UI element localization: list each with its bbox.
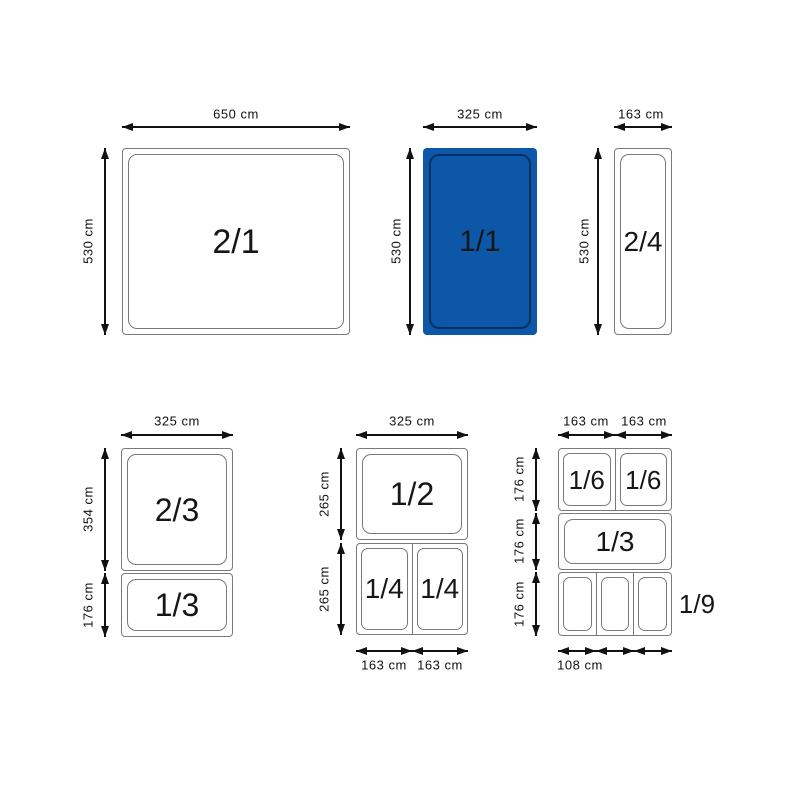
pan-1-9-first: [559, 573, 596, 635]
pan-1-4-first: 1/4: [357, 544, 412, 634]
dim-label-1-6-row-height: 176 cm: [512, 456, 527, 502]
pan-2-1-label: 2/1: [123, 149, 349, 334]
dim-arrow-1-3-left-height: [104, 573, 106, 637]
pan-1-6-second-label: 1/6: [616, 449, 672, 510]
pan-1-3-right-label: 1/3: [559, 514, 671, 569]
dim-arrow-2-4-width: [614, 126, 672, 128]
pan-1-4-second-label: 1/4: [413, 544, 468, 634]
dim-arrow-1-6-row-height: [535, 448, 537, 511]
dim-arrow-1-3-right-height: [535, 513, 537, 570]
dim-arrow-1-9-first-width: [558, 650, 596, 652]
dim-label-left-group-width: 325 cm: [154, 414, 200, 429]
pan-2-4-label: 2/4: [615, 149, 671, 334]
pan-2-3-label: 2/3: [122, 449, 232, 570]
pan-1-9-third-inner-rim: [638, 577, 667, 631]
dim-label-2-4-height: 530 cm: [577, 218, 592, 264]
dim-arrow-1-4-first-width: [356, 650, 412, 652]
dim-arrow-1-9-third-width: [634, 650, 672, 652]
pan-1-6-first-label: 1/6: [559, 449, 615, 510]
pan-1-9-third: [633, 573, 671, 635]
dim-label-1-4-row-height: 265 cm: [317, 566, 332, 612]
pan-2-3: 2/3: [121, 448, 233, 571]
pan-row-1-4: 1/4 1/4: [356, 543, 468, 635]
dim-arrow-1-4-row-height: [340, 543, 342, 635]
dim-arrow-1-9-row-height: [535, 572, 537, 636]
pan-1-9-second: [596, 573, 634, 635]
dim-label-right-group-width-second: 163 cm: [621, 414, 667, 429]
dim-label-1-9-row-height: 176 cm: [512, 581, 527, 627]
pan-1-3-left-label: 1/3: [122, 574, 232, 636]
dim-arrow-1-1-height: [409, 148, 411, 335]
dim-arrow-1-1-width: [423, 126, 537, 128]
dim-label-1-2-height: 265 cm: [317, 471, 332, 517]
dim-arrow-right-group-width-second: [615, 434, 672, 436]
dim-arrow-1-9-second-width: [596, 650, 634, 652]
dim-arrow-right-group-width-first: [558, 434, 615, 436]
pan-1-2-label: 1/2: [357, 449, 467, 539]
gastronorm-pan-size-diagram: 650 cm 530 cm 2/1 325 cm 530 cm 1/1 163 …: [0, 0, 800, 800]
dim-label-1-4-first-width: 163 cm: [361, 658, 407, 673]
pan-1-1-label: 1/1: [424, 149, 536, 334]
dim-label-2-1-height: 530 cm: [81, 218, 96, 264]
dim-arrow-2-3-height: [104, 448, 106, 571]
pan-2-4: 2/4: [614, 148, 672, 335]
dim-label-middle-group-width: 325 cm: [389, 414, 435, 429]
dim-label-2-1-width: 650 cm: [213, 107, 259, 122]
pan-2-1: 2/1: [122, 148, 350, 335]
dim-arrow-1-2-height: [340, 448, 342, 540]
dim-label-2-4-width: 163 cm: [618, 107, 664, 122]
dim-arrow-2-1-width: [122, 126, 350, 128]
pan-1-3-left: 1/3: [121, 573, 233, 637]
pan-1-3-right: 1/3: [558, 513, 672, 570]
dim-arrow-2-1-height: [104, 148, 106, 335]
dim-arrow-1-4-second-width: [412, 650, 468, 652]
dim-label-1-3-left-height: 176 cm: [81, 582, 96, 628]
dim-label-1-3-right-height: 176 cm: [512, 518, 527, 564]
pan-1-4-second: 1/4: [412, 544, 468, 634]
dim-arrow-left-group-width: [121, 434, 233, 436]
pan-1-9-label: 1/9: [679, 591, 715, 617]
pan-1-2: 1/2: [356, 448, 468, 540]
dim-label-1-9-width: 108 cm: [557, 658, 603, 673]
pan-1-4-first-label: 1/4: [357, 544, 412, 634]
pan-row-1-6: 1/6 1/6: [558, 448, 672, 511]
pan-1-6-first: 1/6: [559, 449, 615, 510]
dim-label-2-3-height: 354 cm: [81, 486, 96, 532]
pan-1-9-second-inner-rim: [601, 577, 630, 631]
dim-arrow-2-4-height: [597, 148, 599, 335]
dim-label-right-group-width-first: 163 cm: [563, 414, 609, 429]
pan-1-9-first-inner-rim: [563, 577, 592, 631]
dim-label-1-1-height: 530 cm: [389, 218, 404, 264]
dim-arrow-middle-group-width: [356, 434, 468, 436]
dim-label-1-1-width: 325 cm: [457, 107, 503, 122]
pan-1-1-highlighted: 1/1: [423, 148, 537, 335]
pan-row-1-9: [558, 572, 672, 636]
dim-label-1-4-second-width: 163 cm: [417, 658, 463, 673]
pan-1-6-second: 1/6: [615, 449, 672, 510]
